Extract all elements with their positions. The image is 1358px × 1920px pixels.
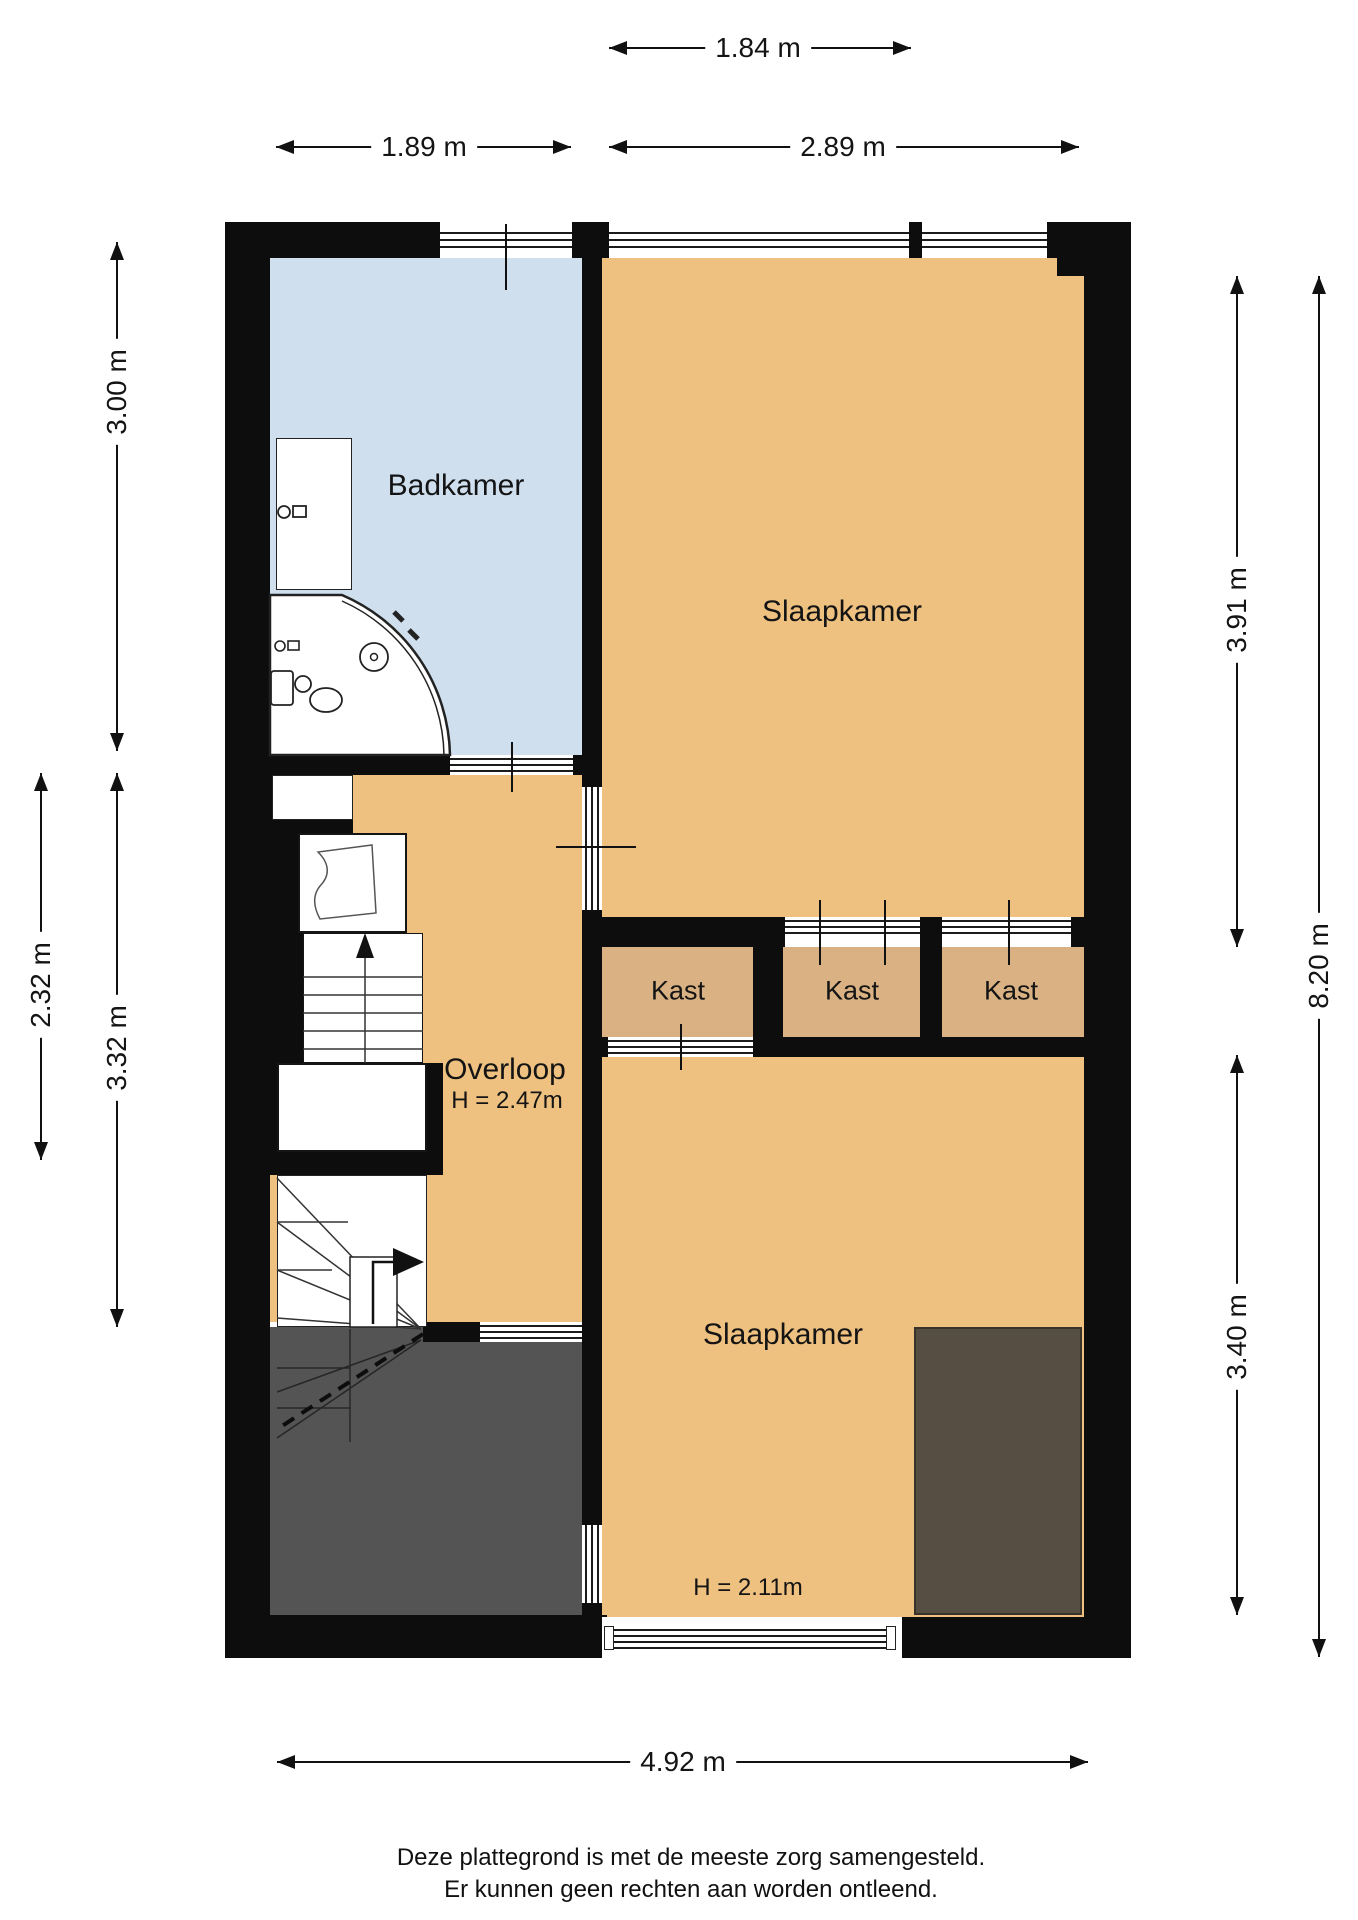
dimension-label-right-upper: 3.91 m [1220,557,1254,663]
door-tick-kast-midden-2 [884,900,886,965]
dimension-label-bottom: 4.92 m [630,1745,736,1779]
stairwell-landing-box [277,1063,427,1152]
label-slaapkamer-boven: Slaapkamer [762,595,922,629]
door-stairwell-lower [582,1525,602,1603]
label-kast-midden: Kast [825,976,879,1007]
window-slaapkamer-top-left [609,222,909,258]
window-endpost-left [604,1626,614,1650]
label-slaapkamer-onder-height: H = 2.11m [693,1574,803,1602]
room-slaapkamer-boven-floor [602,258,1084,917]
wall-kast-top-right [1071,917,1084,947]
dimension-label-right-outer: 8.20 m [1302,913,1336,1019]
wall-badkamer-bottom [270,755,450,775]
door-overloop-stairwell [480,1322,582,1342]
window-endpost-right [886,1626,896,1650]
void-stairwell-area [270,1327,582,1615]
wall-stairbox-bottom [225,1152,427,1175]
wall-top-mid-block [572,222,609,258]
footer-disclaimer-line1: Deze plattegrond is met de meeste zorg s… [341,1844,1041,1872]
window-slaapkamer-top-right [922,222,1047,258]
wall-kast-bottom-right [753,1037,1084,1057]
wall-bottom-left [225,1615,607,1658]
wall-outer-right [1084,276,1131,1658]
staircase-winder-flight [277,1175,427,1327]
dimension-label-left-lower: 3.32 m [100,995,134,1101]
staircase-upper-flight [303,933,423,1063]
wall-spine-lower [582,1603,602,1617]
wall-overloop-bottom [423,1322,480,1342]
dimension-label-top-right: 2.89 m [790,130,896,164]
door-kast-midden [785,917,920,947]
wall-bottom-right [898,1617,1131,1658]
window-tick-badkamer [505,224,507,290]
dimension-label-top-window: 1.84 m [705,31,811,65]
wall-window-mullion [909,222,922,258]
bathroom-vanity [276,438,352,590]
door-tick-kast-links [680,1024,682,1070]
wall-recess-bottom [270,820,353,833]
footer-disclaimer-line2: Er kunnen geen rechten aan worden ontlee… [341,1876,1041,1904]
label-overloop-height: H = 2.47m [451,1087,562,1115]
wall-badkamer-bottom-right [573,755,582,775]
dimension-label-right-lower: 3.40 m [1220,1284,1254,1390]
wall-spine-middle [582,910,602,1525]
door-tick-kast-midden-1 [819,900,821,965]
boiler-cabinet [298,833,407,933]
door-slaapkamer-boven [582,787,602,910]
floorplan-page: Badkamer Slaapkamer Overloop H = 2.47m K… [0,0,1358,1920]
wall-top-right-corner [1057,222,1131,276]
label-badkamer: Badkamer [388,469,525,503]
wall-top-left [225,222,440,258]
door-tick-slaapkamer-boven [556,846,636,848]
dimension-label-top-left: 1.89 m [371,130,477,164]
label-kast-rechts: Kast [984,976,1038,1007]
label-slaapkamer-onder: Slaapkamer [703,1318,863,1352]
dimension-label-left-upper: 3.00 m [100,339,134,445]
label-overloop: Overloop [444,1053,566,1087]
dimension-label-left-outer: 2.32 m [24,932,58,1038]
wall-stairbox-right [427,1063,443,1175]
window-slaapkamer-onder [612,1628,890,1650]
door-tick-kast-rechts [1008,900,1010,965]
wall-kast-top-left [602,917,785,947]
lowered-ceiling-block [914,1327,1082,1615]
door-tick-badkamer [511,742,513,792]
wall-spine-upper [582,258,602,787]
wall-kast-top-mid [920,917,942,947]
wall-recess-niche [272,775,353,820]
door-kast-rechts [942,917,1071,947]
label-kast-links: Kast [651,976,705,1007]
